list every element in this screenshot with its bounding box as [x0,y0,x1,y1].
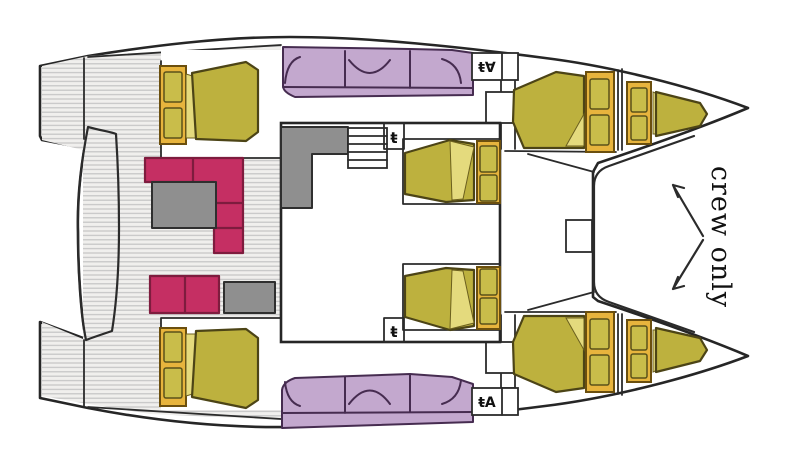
pillow [164,332,182,362]
crew-only-label: crew only [705,166,736,308]
pillow [480,175,497,201]
crew-only-annotation: crew only [673,166,736,308]
deck-plan-svg: ŧ∀ ŧA ŧ ŧ [0,0,800,464]
pillow [164,368,182,398]
port-side-bench [283,47,473,97]
cockpit-sofa-2 [150,276,219,313]
helm-station-bottom-icon: ŧA [478,395,496,411]
pillow [631,326,647,350]
companionway-stairs [348,128,387,168]
pillow [164,108,182,138]
pillow [590,115,609,145]
pillow [631,88,647,112]
cockpit-table-port [152,182,216,228]
helm-station-bottom: ŧA [472,388,518,415]
pillow [590,79,609,109]
pillow [480,269,497,295]
cockpit-table-starboard [224,282,275,313]
crew-only-arrows [673,185,703,289]
helm-station-top: ŧ∀ [472,53,518,80]
helm-station-top-icon: ŧ∀ [478,60,496,76]
pillow [590,319,609,349]
mast-step [566,220,592,252]
starboard-forward-cabin-bed [513,312,614,392]
saloon-fixture-bottom-icon: ŧ [390,323,397,341]
pillow [480,146,497,172]
pillow [631,354,647,378]
saloon-berth-port [403,139,500,204]
port-forward-cabin-bed [513,72,614,152]
foredeck-platform [594,136,694,332]
port-aft-cabin-bed [160,62,258,144]
saloon-fixture-top-icon: ŧ [390,129,397,147]
pillow [631,116,647,140]
pillow [480,298,497,324]
saloon-berth-starboard [403,264,500,330]
deck-plan: ŧ∀ ŧA ŧ ŧ [0,0,800,464]
starboard-side-bench [282,374,473,428]
starboard-aft-cabin-bed [160,328,258,408]
pillow [164,72,182,102]
pillow [590,355,609,385]
